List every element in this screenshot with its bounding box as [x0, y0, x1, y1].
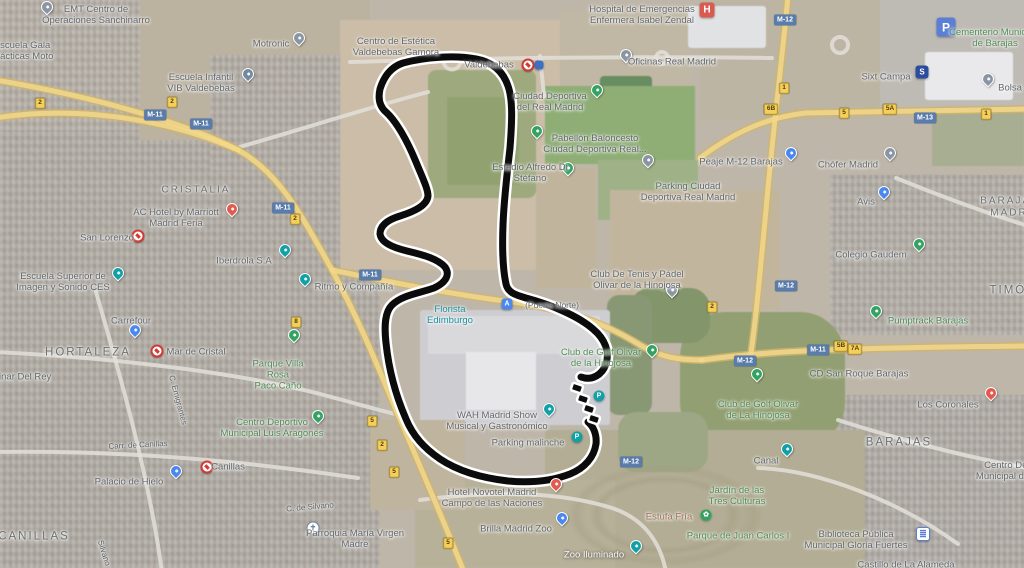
- motorway-shield: M-11: [807, 345, 829, 356]
- poi-label[interactable]: Escuela InfantilVIB Valdebebas: [167, 73, 234, 95]
- poi-label[interactable]: Iberdrola S.A: [216, 257, 271, 268]
- poi-label[interactable]: Ciudad Deportivadel Real Madrid: [513, 92, 586, 114]
- exit-shield: 5: [367, 416, 377, 427]
- poi-label[interactable]: Mar de Cristal: [166, 348, 225, 359]
- poi-label[interactable]: Biblioteca PúblicaMunicipal Gloria Fuert…: [805, 530, 908, 552]
- exit-shield: 5A: [883, 104, 897, 115]
- exit-shield: 2: [35, 98, 45, 109]
- poi-label[interactable]: San Lorenzo: [80, 234, 134, 245]
- poi-label[interactable]: Pinar Del Rey: [0, 373, 51, 384]
- poi-label[interactable]: Ritmo y Compañía: [315, 283, 394, 294]
- poi-label[interactable]: Canal: [754, 457, 779, 468]
- district-label: HORTALEZA: [45, 346, 131, 359]
- poi-label[interactable]: Parking CiudadDeportiva Real Madrid: [641, 182, 736, 204]
- parking-pin-icon[interactable]: P: [594, 391, 605, 402]
- poi-label[interactable]: Parroquia María VirgenMadre: [306, 529, 404, 551]
- exit-shield: 2: [377, 440, 387, 451]
- exit-shield: 2: [707, 302, 717, 313]
- district-label: BARAJAS: [866, 436, 932, 449]
- district-label: TIMÓN: [989, 284, 1024, 297]
- poi-label[interactable]: Jardín de lasTres Culturas: [709, 486, 766, 508]
- district-label: BARAJAS: [980, 195, 1024, 207]
- poi-label[interactable]: Club de Golf Olivarde la Hinojosa: [561, 348, 641, 370]
- exit-shield: 5B: [834, 341, 848, 352]
- poi-label[interactable]: Bolsa: [998, 84, 1022, 95]
- motorway-shield: M-11: [272, 203, 294, 214]
- poi-label[interactable]: Hospital de EmergenciasEnfermera Isabel …: [589, 5, 695, 27]
- poi-label[interactable]: Escuela GalaPrácticas Moto: [0, 41, 53, 63]
- exit-shield: 7A: [848, 344, 862, 355]
- motorway-shield: M-11: [190, 119, 212, 130]
- motorway-shield: M-11: [144, 110, 166, 121]
- poi-label[interactable]: Carrefour: [111, 317, 151, 328]
- poi-label[interactable]: WAH Madrid ShowMusical y Gastronómico: [446, 411, 547, 433]
- library-icon[interactable]: ≣: [916, 527, 930, 541]
- poi-label[interactable]: Palacio de Hielo: [95, 478, 164, 489]
- exit-shield: 2: [167, 97, 177, 108]
- poi-label[interactable]: Centro de EstéticaValdebebas Gamora: [353, 37, 439, 59]
- exit-shield: 5: [389, 467, 399, 478]
- poi-label[interactable]: Chófer Madrid: [818, 161, 878, 172]
- exit-shield: 2: [290, 214, 300, 225]
- circuit-dash-segment: [588, 413, 601, 424]
- motorway-shield: M-12: [734, 356, 756, 367]
- poi-label[interactable]: Centro DeportivoMunicipal de Barajas: [976, 461, 1024, 483]
- parking-pin-icon[interactable]: P: [572, 432, 583, 443]
- motorway-shield: M-12: [620, 457, 642, 468]
- poi-label[interactable]: Parque de Juan Carlos I: [687, 532, 789, 543]
- poi-label[interactable]: Motronic: [253, 40, 289, 51]
- sixt-icon[interactable]: S: [916, 66, 929, 79]
- district-label: MADRID: [990, 207, 1024, 219]
- circuit-dash-segment: [583, 403, 596, 414]
- poi-label[interactable]: Escuela Superior deImagen y Sonido CES: [16, 272, 109, 294]
- poi-label: Zoo Iluminado: [564, 551, 624, 562]
- transit-stop-icon[interactable]: A: [502, 299, 513, 310]
- motorway-shield: M-12: [774, 15, 796, 26]
- poi-label[interactable]: EMT Centro deOperaciones Sanchinarro: [42, 5, 150, 27]
- motorway-shield: M-12: [775, 281, 797, 292]
- metro-station-icon[interactable]: [151, 345, 164, 358]
- poi-label[interactable]: Oficinas Real Madrid: [628, 58, 716, 69]
- exit-shield: 6B: [764, 104, 778, 115]
- poi-label[interactable]: Centro DeportivoMunicipal Luis Aragonés: [221, 418, 324, 440]
- poi-label[interactable]: Colegio Gaudem: [835, 251, 906, 262]
- exit-shield: 5: [839, 108, 849, 119]
- poi-label[interactable]: CD San Roque Barajas: [810, 370, 909, 381]
- motorway-shield: M-11: [359, 270, 381, 281]
- poi-label[interactable]: Valdebebas: [464, 61, 513, 72]
- poi-label[interactable]: Pabellón BaloncestoCiudad Deportiva Real…: [543, 134, 647, 156]
- poi-label[interactable]: Parque VillaRosaPaco Caño: [252, 360, 303, 393]
- circuit-dash-segment: [577, 393, 590, 404]
- exit-shield: 8: [291, 317, 301, 328]
- poi-label[interactable]: Brilla Madrid Zoo: [480, 525, 552, 536]
- poi-label[interactable]: Estadio Alfredo DiStéfano: [492, 163, 568, 185]
- garden-icon[interactable]: ✿: [701, 510, 712, 521]
- poi-label[interactable]: Castillo de La Alameda: [857, 561, 954, 568]
- poi-label[interactable]: Avis: [857, 198, 875, 209]
- motorway-shield: M-13: [914, 113, 936, 124]
- hospital-icon[interactable]: H: [700, 3, 715, 18]
- poi-label[interactable]: Canillas: [211, 463, 245, 474]
- district-label: CRISTALIA: [162, 184, 231, 196]
- exit-shield: 1: [981, 109, 991, 120]
- poi-label[interactable]: Pumptrack Barajas: [888, 317, 968, 328]
- poi-label[interactable]: Club De Tenis y PádelOlivar de la Hinojo…: [590, 270, 683, 292]
- poi-label[interactable]: Peaje M-12 Barajas: [699, 158, 782, 169]
- poi-label[interactable]: AC Hotel by MarriottMadrid Feria: [133, 208, 219, 230]
- poi-label[interactable]: Cementerio Municipalde Barajas: [949, 28, 1024, 50]
- circuit-dash-segment: [571, 382, 584, 393]
- poi-label[interactable]: Los Coronales: [917, 401, 978, 412]
- poi-label[interactable]: (Puerta Norte): [525, 301, 579, 311]
- exit-shield: 5: [443, 538, 453, 549]
- poi-label[interactable]: Club de Golf Olivarde La Hinojosa: [718, 400, 798, 422]
- poi-label[interactable]: FloristaEdimburgo: [427, 305, 473, 327]
- train-station-icon[interactable]: [535, 61, 544, 70]
- poi-label[interactable]: Sixt Campa: [861, 73, 910, 84]
- satellite-map[interactable]: M-11M-11M-11M-11M-11M-12M-12M-12M-12M-13…: [0, 0, 1024, 568]
- poi-label[interactable]: Hotel Novotel MadridCampo de las Nacione…: [442, 488, 543, 510]
- exit-shield: 1: [779, 83, 789, 94]
- metro-station-icon[interactable]: [522, 59, 535, 72]
- district-label: CANILLAS: [0, 530, 70, 543]
- poi-label[interactable]: Parking malinche: [492, 439, 565, 450]
- poi-label: Estufa Fría: [646, 513, 692, 524]
